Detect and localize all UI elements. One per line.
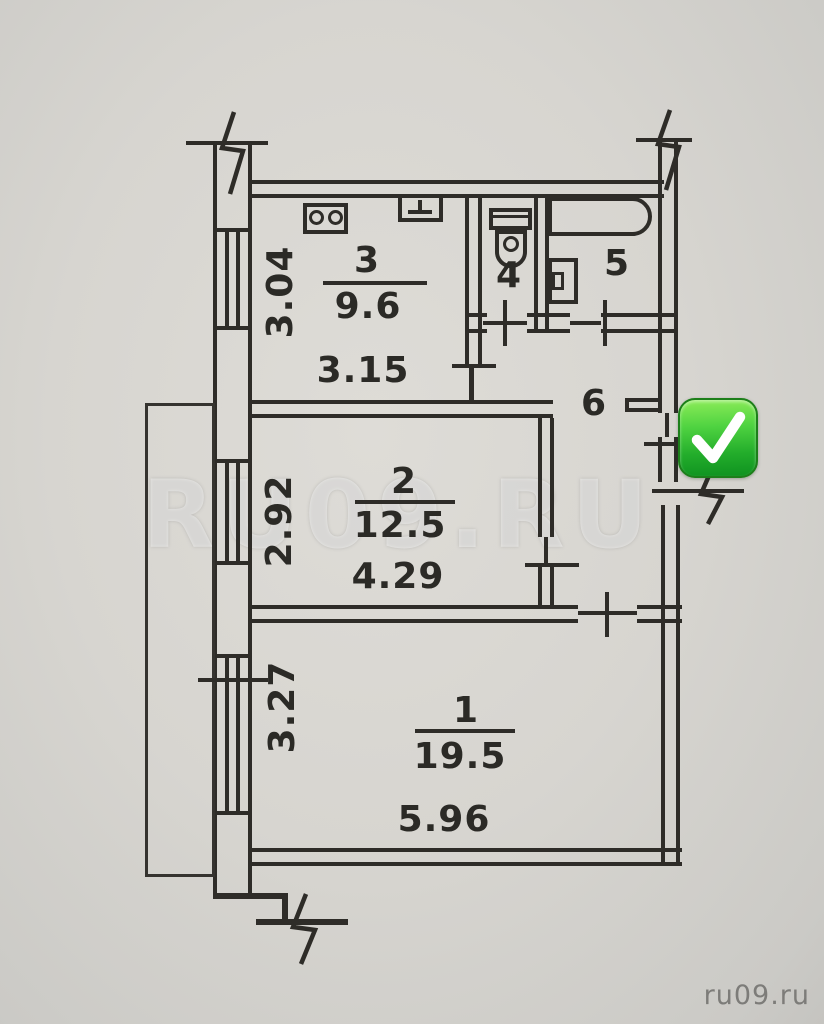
- wall-break-zigzag: [222, 112, 243, 194]
- checkmark-glyph: [680, 400, 756, 476]
- floor-plan-photo: RU09.RU: [0, 0, 824, 1024]
- wall-break-zigzag: [293, 894, 315, 964]
- approved-check-icon: [678, 398, 758, 478]
- site-label: ru09.ru: [640, 980, 810, 1011]
- wall-break-zigzag: [658, 110, 679, 190]
- wall-break-overlay: [0, 0, 824, 1024]
